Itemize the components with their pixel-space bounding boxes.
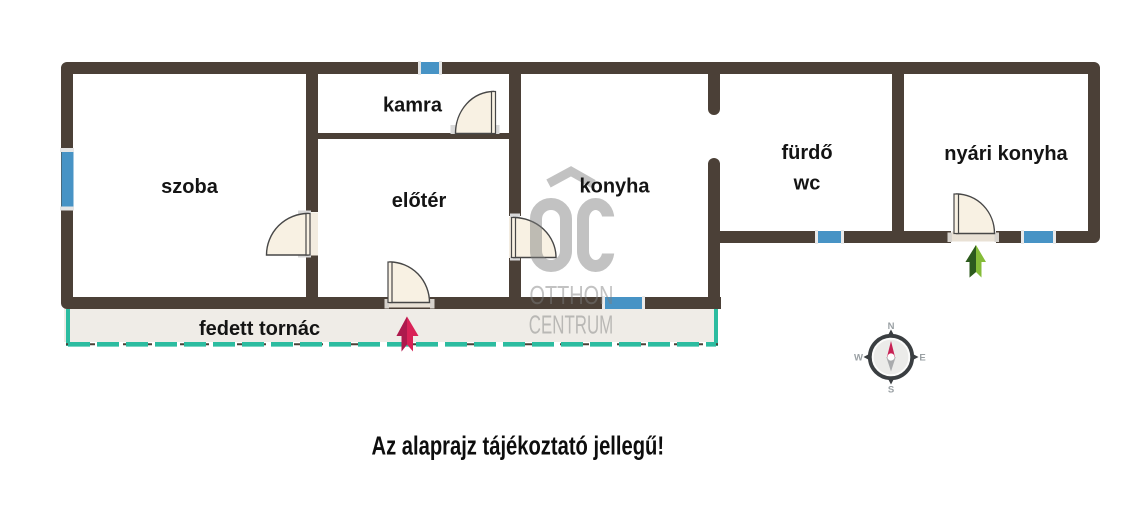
- svg-text:előtér: előtér: [392, 190, 447, 212]
- svg-text:N: N: [888, 321, 895, 332]
- svg-text:Az alaprajz tájékoztató jelleg: Az alaprajz tájékoztató jellegű!: [372, 431, 665, 460]
- svg-text:OTTHON: OTTHON: [530, 280, 614, 309]
- svg-text:CENTRUM: CENTRUM: [529, 310, 613, 340]
- svg-text:W: W: [854, 353, 863, 364]
- svg-text:fürdő: fürdő: [781, 142, 832, 164]
- svg-text:nyári konyha: nyári konyha: [944, 143, 1068, 165]
- svg-text:fedett tornác: fedett tornác: [199, 318, 320, 340]
- svg-text:wc: wc: [793, 173, 821, 195]
- svg-text:E: E: [919, 353, 925, 364]
- svg-text:szoba: szoba: [161, 176, 219, 198]
- svg-text:S: S: [888, 384, 894, 395]
- svg-text:konyha: konyha: [579, 176, 650, 198]
- svg-text:kamra: kamra: [383, 95, 443, 117]
